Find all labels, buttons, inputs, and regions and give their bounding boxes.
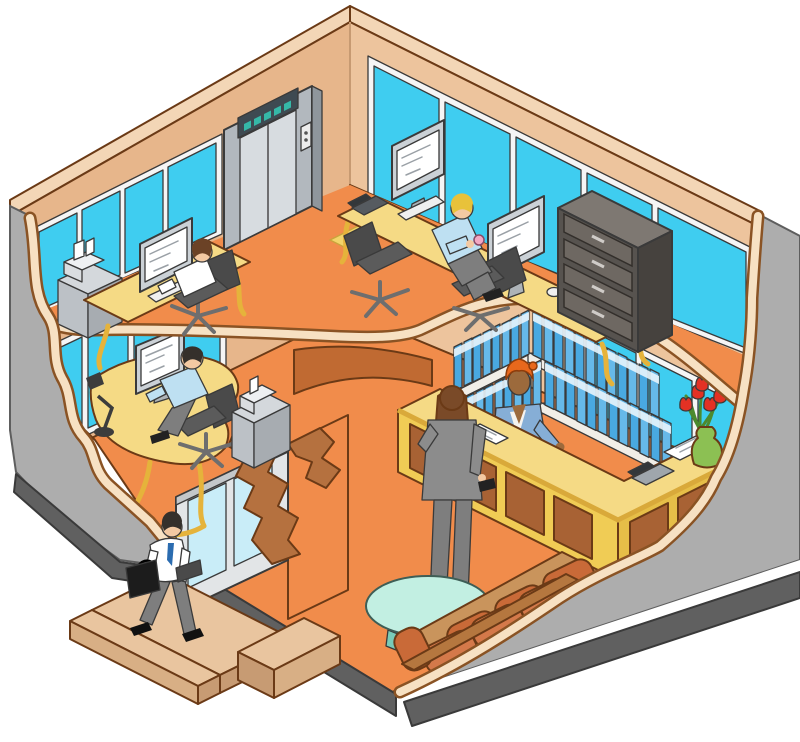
head bbox=[440, 386, 464, 410]
hand bbox=[466, 240, 474, 248]
printer-paper bbox=[250, 376, 258, 394]
cabinet-side bbox=[638, 231, 672, 352]
call-button-panel bbox=[301, 122, 311, 151]
headwrap-knot bbox=[529, 362, 537, 370]
elevator-frame-side bbox=[312, 86, 322, 211]
call-button bbox=[304, 131, 308, 135]
office-cutaway-illustration bbox=[0, 0, 800, 742]
call-button bbox=[304, 138, 308, 142]
cup bbox=[474, 235, 484, 245]
isometric-office-scene bbox=[0, 0, 800, 742]
